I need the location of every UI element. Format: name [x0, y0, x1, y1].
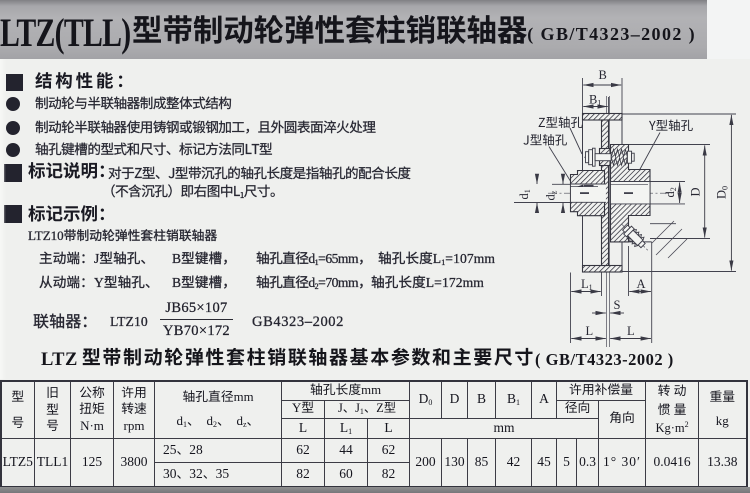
svg-text:D0: D0: [715, 186, 730, 199]
svg-text:L: L: [586, 324, 594, 338]
svg-text:B: B: [599, 68, 607, 82]
svg-text:d2: d2: [663, 187, 678, 197]
svg-text:B1: B1: [589, 93, 601, 108]
svg-text:Y型轴孔: Y型轴孔: [648, 115, 694, 134]
svg-text:J型轴孔: J型轴孔: [523, 130, 568, 149]
svg-text:L1: L1: [581, 277, 593, 292]
svg-text:Z型轴孔: Z型轴孔: [538, 112, 584, 131]
svg-text:A: A: [637, 277, 646, 291]
svg-text:D: D: [689, 187, 703, 196]
svg-text:dz: dz: [544, 190, 559, 200]
svg-text:d1: d1: [517, 189, 532, 199]
svg-text:S: S: [614, 298, 621, 312]
svg-text:L: L: [627, 324, 635, 338]
